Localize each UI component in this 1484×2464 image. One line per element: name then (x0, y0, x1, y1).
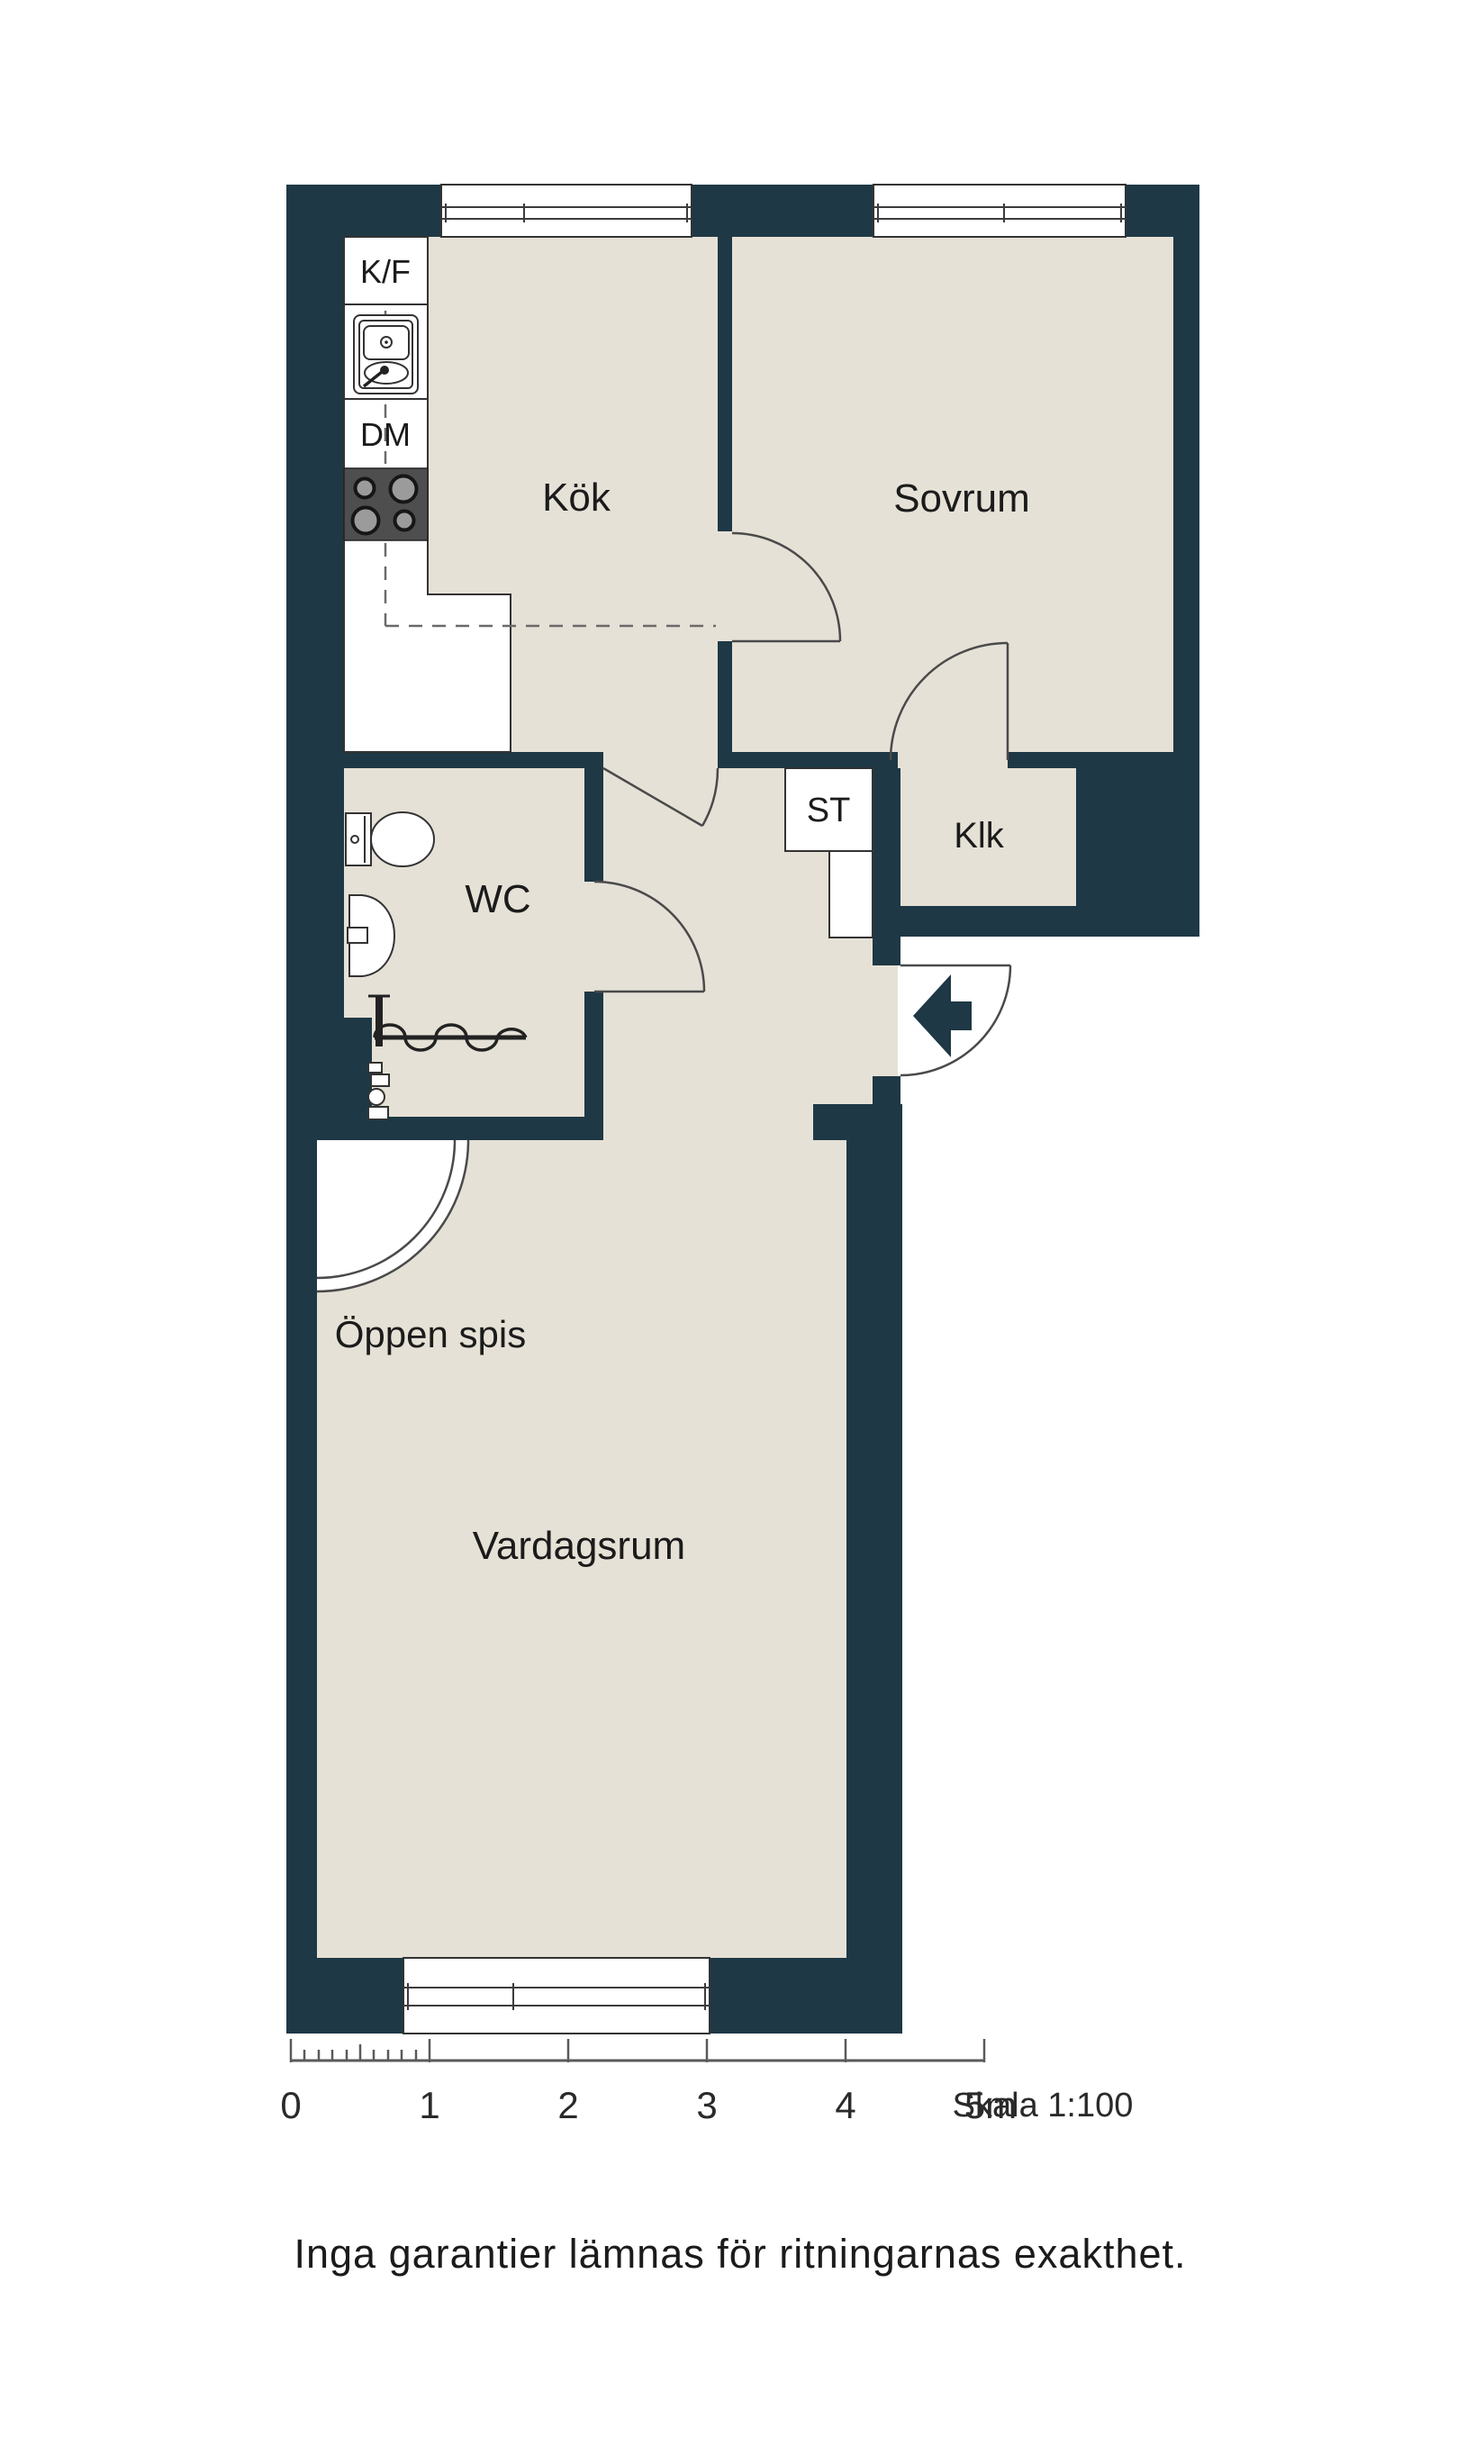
open-fireplace-label: Öppen spis (335, 1313, 526, 1355)
scale-tick-label: 0 (280, 2084, 301, 2126)
scale-bar-major-ticks (291, 2039, 984, 2062)
wall-segment (718, 237, 732, 531)
wall-segment (344, 752, 603, 768)
wall-segment (846, 1140, 902, 2034)
fridge-freezer-label: K/F (360, 253, 411, 290)
kitchen-window-icon (441, 185, 692, 237)
disclaimer-text: Inga garantier lämnas för ritningarnas e… (294, 2231, 1186, 2277)
bedroom-window-icon (873, 185, 1126, 237)
closet-opening-floor (898, 752, 1008, 768)
closet-klk-label: Klk (954, 816, 1005, 856)
living-room-window-icon (403, 1958, 710, 2034)
scale-tick-label: 2 (557, 2084, 578, 2126)
bedroom-label: Sovrum (893, 476, 1030, 521)
wall-segment (584, 768, 603, 882)
entry-arrow-icon (913, 974, 972, 1057)
kitchen-label: Kök (542, 476, 611, 520)
living-room-label: Vardagsrum (473, 1524, 685, 1568)
wall-segment (873, 906, 1199, 937)
wall-segment (286, 185, 344, 1140)
wall-segment (718, 641, 732, 752)
dishwasher-label: DM (360, 416, 411, 453)
wall-segment (873, 1076, 900, 1104)
scale-bar-labels: 0 1 2 3 4 5m Skala 1:100 (280, 2084, 1133, 2126)
closet-st-label: ST (807, 792, 851, 829)
closet-st-box-lower (829, 851, 873, 938)
stove-icon (344, 468, 428, 540)
sink-icon (354, 315, 418, 394)
wall-segment (718, 752, 898, 768)
floor-plan-drawing: K/F DM Kök Sovrum WC ST Klk Öppen spis V… (0, 0, 1484, 2464)
toilet-icon (346, 812, 434, 866)
wall-segment (813, 1104, 902, 1140)
scale-ratio-label: Skala 1:100 (953, 2087, 1134, 2124)
door-opening-floor (603, 752, 718, 768)
scale-bar: 0 1 2 3 4 5m Skala 1:100 (280, 2039, 1133, 2126)
scale-tick-label: 1 (419, 2084, 439, 2126)
wc-label: WC (465, 877, 530, 921)
wall-segment (873, 768, 900, 965)
scale-tick-label: 4 (835, 2084, 855, 2126)
room-floors (317, 237, 1173, 1958)
wall-segment (286, 1140, 317, 2034)
scale-bar-minor-ticks (304, 2044, 416, 2061)
scale-tick-label: 3 (696, 2084, 717, 2126)
floor-plan-page: K/F DM Kök Sovrum WC ST Klk Öppen spis V… (0, 0, 1484, 2464)
door-opening-floor (718, 531, 732, 641)
wall-segment (1008, 752, 1173, 768)
